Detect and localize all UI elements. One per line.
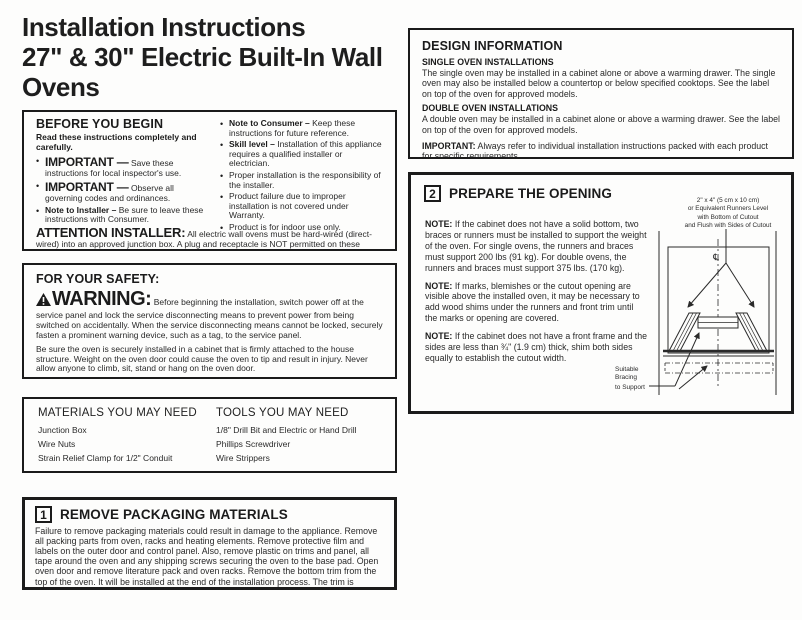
instruction-manual-page: Installation Instructions 27" & 30" Elec… <box>0 0 802 620</box>
step1-heading: REMOVE PACKAGING MATERIALS <box>60 507 288 522</box>
attention-installer-note: ATTENTION INSTALLER: All electric wall o… <box>36 226 387 252</box>
materials-column: MATERIALS YOU MAY NEED Junction Box Wire… <box>38 407 216 468</box>
bullet-icon: • <box>36 181 45 204</box>
note-lead: NOTE: <box>425 219 452 229</box>
section-step1-remove-packaging: 1 REMOVE PACKAGING MATERIALS Failure to … <box>22 497 397 590</box>
tool-item: Phillips Screwdriver <box>216 439 385 449</box>
section-for-your-safety: FOR YOUR SAFETY: WARNING: Before beginni… <box>22 263 397 379</box>
tools-heading: TOOLS YOU MAY NEED <box>216 407 385 419</box>
double-oven-body: A double oven may be installed in a cabi… <box>422 114 780 135</box>
runner-dimension-label: 2" x 4" (5 cm x 10 cm) or Equivalent Run… <box>655 197 794 230</box>
tool-item: 1/8" Drill Bit and Electric or Hand Dril… <box>216 425 385 435</box>
list-item: •Note to Installer – Be sure to leave th… <box>36 206 208 225</box>
bullet-icon: • <box>220 192 229 221</box>
bullet-icon: • <box>36 156 45 179</box>
list-item: •Product failure due to improper install… <box>220 192 385 221</box>
bullet-icon: • <box>220 119 229 138</box>
bullet-icon: • <box>220 140 229 169</box>
materials-heading: MATERIALS YOU MAY NEED <box>38 407 216 419</box>
warning-triangle-icon <box>36 293 51 306</box>
design-information-heading: DESIGN INFORMATION <box>422 39 780 53</box>
important-lead: IMPORTANT: <box>422 141 476 151</box>
important-note: IMPORTANT: Always refer to individual in… <box>422 141 780 159</box>
material-item: Junction Box <box>38 425 216 435</box>
section-design-information: DESIGN INFORMATION SINGLE OVEN INSTALLAT… <box>408 28 794 159</box>
list-item: •IMPORTANT — Save these instructions for… <box>36 156 208 179</box>
before-you-begin-left-column: BEFORE YOU BEGIN Read these instructions… <box>36 117 208 236</box>
safety-paragraph: Be sure the oven is securely installed i… <box>36 345 385 375</box>
section-before-you-begin: BEFORE YOU BEGIN Read these instructions… <box>22 110 397 251</box>
bracing-label-line: to Support <box>615 384 645 391</box>
bracing-label-line: Bracing <box>615 374 637 381</box>
safety-paragraph: Make sure the wall coverings, counters a… <box>36 378 385 379</box>
list-item: •Proper installation is the responsibili… <box>220 171 385 190</box>
list-item: •Skill level – Installation of this appl… <box>220 140 385 169</box>
bullet-lead: Skill level – <box>229 139 275 149</box>
warning-paragraph: WARNING: Before beginning the installati… <box>36 288 385 341</box>
before-you-begin-right-column: •Note to Consumer – Keep these instructi… <box>220 117 385 236</box>
warning-word: WARNING: <box>52 288 151 310</box>
bullet-text: Product failure due to improper installa… <box>229 191 349 220</box>
bullet-text: Proper installation is the responsibilit… <box>229 170 381 190</box>
single-oven-body: The single oven may be installed in a ca… <box>422 68 780 99</box>
section-step2-prepare-opening: 2 PREPARE THE OPENING NOTE: If the cabin… <box>408 172 794 414</box>
step-number-badge: 2 <box>424 185 441 202</box>
attention-installer-lead: ATTENTION INSTALLER: <box>36 225 185 240</box>
before-you-begin-heading: BEFORE YOU BEGIN <box>36 117 208 131</box>
bullet-lead: IMPORTANT — <box>45 155 129 169</box>
tool-item: Wire Strippers <box>216 453 385 463</box>
bracing-label-line: Suitable <box>615 366 639 373</box>
tools-column: TOOLS YOU MAY NEED 1/8" Drill Bit and El… <box>216 407 385 468</box>
for-your-safety-heading: FOR YOUR SAFETY: <box>36 272 385 286</box>
bullet-icon: • <box>36 206 45 225</box>
bullet-icon: • <box>220 171 229 190</box>
page-title: Installation Instructions <box>22 12 400 42</box>
bullet-lead: IMPORTANT — <box>45 180 129 194</box>
step1-body: Failure to remove packaging materials co… <box>35 526 384 590</box>
bullet-lead: Note to Consumer – <box>229 118 310 128</box>
step2-heading: PREPARE THE OPENING <box>449 186 612 201</box>
note-lead: NOTE: <box>425 281 452 291</box>
list-item: •IMPORTANT — Observe all governing codes… <box>36 181 208 204</box>
double-oven-heading: DOUBLE OVEN INSTALLATIONS <box>422 103 780 113</box>
step-number-badge: 1 <box>35 506 52 523</box>
material-item: Strain Relief Clamp for 1/2" Conduit <box>38 453 216 463</box>
note-lead: NOTE: <box>425 331 452 341</box>
single-oven-heading: SINGLE OVEN INSTALLATIONS <box>422 57 780 67</box>
bullet-lead: Note to Installer – <box>45 205 116 215</box>
material-item: Wire Nuts <box>38 439 216 449</box>
list-item: •Note to Consumer – Keep these instructi… <box>220 119 385 138</box>
before-you-begin-intro: Read these instructions completely and c… <box>36 133 208 153</box>
centerline-symbol: ℄ <box>712 252 719 262</box>
section-materials-tools: MATERIALS YOU MAY NEED Junction Box Wire… <box>22 397 397 473</box>
page-subtitle: 27" & 30" Electric Built-In Wall Ovens <box>22 42 400 102</box>
cabinet-opening-diagram: ℄ Suitable Bracing to Support <box>603 229 793 411</box>
